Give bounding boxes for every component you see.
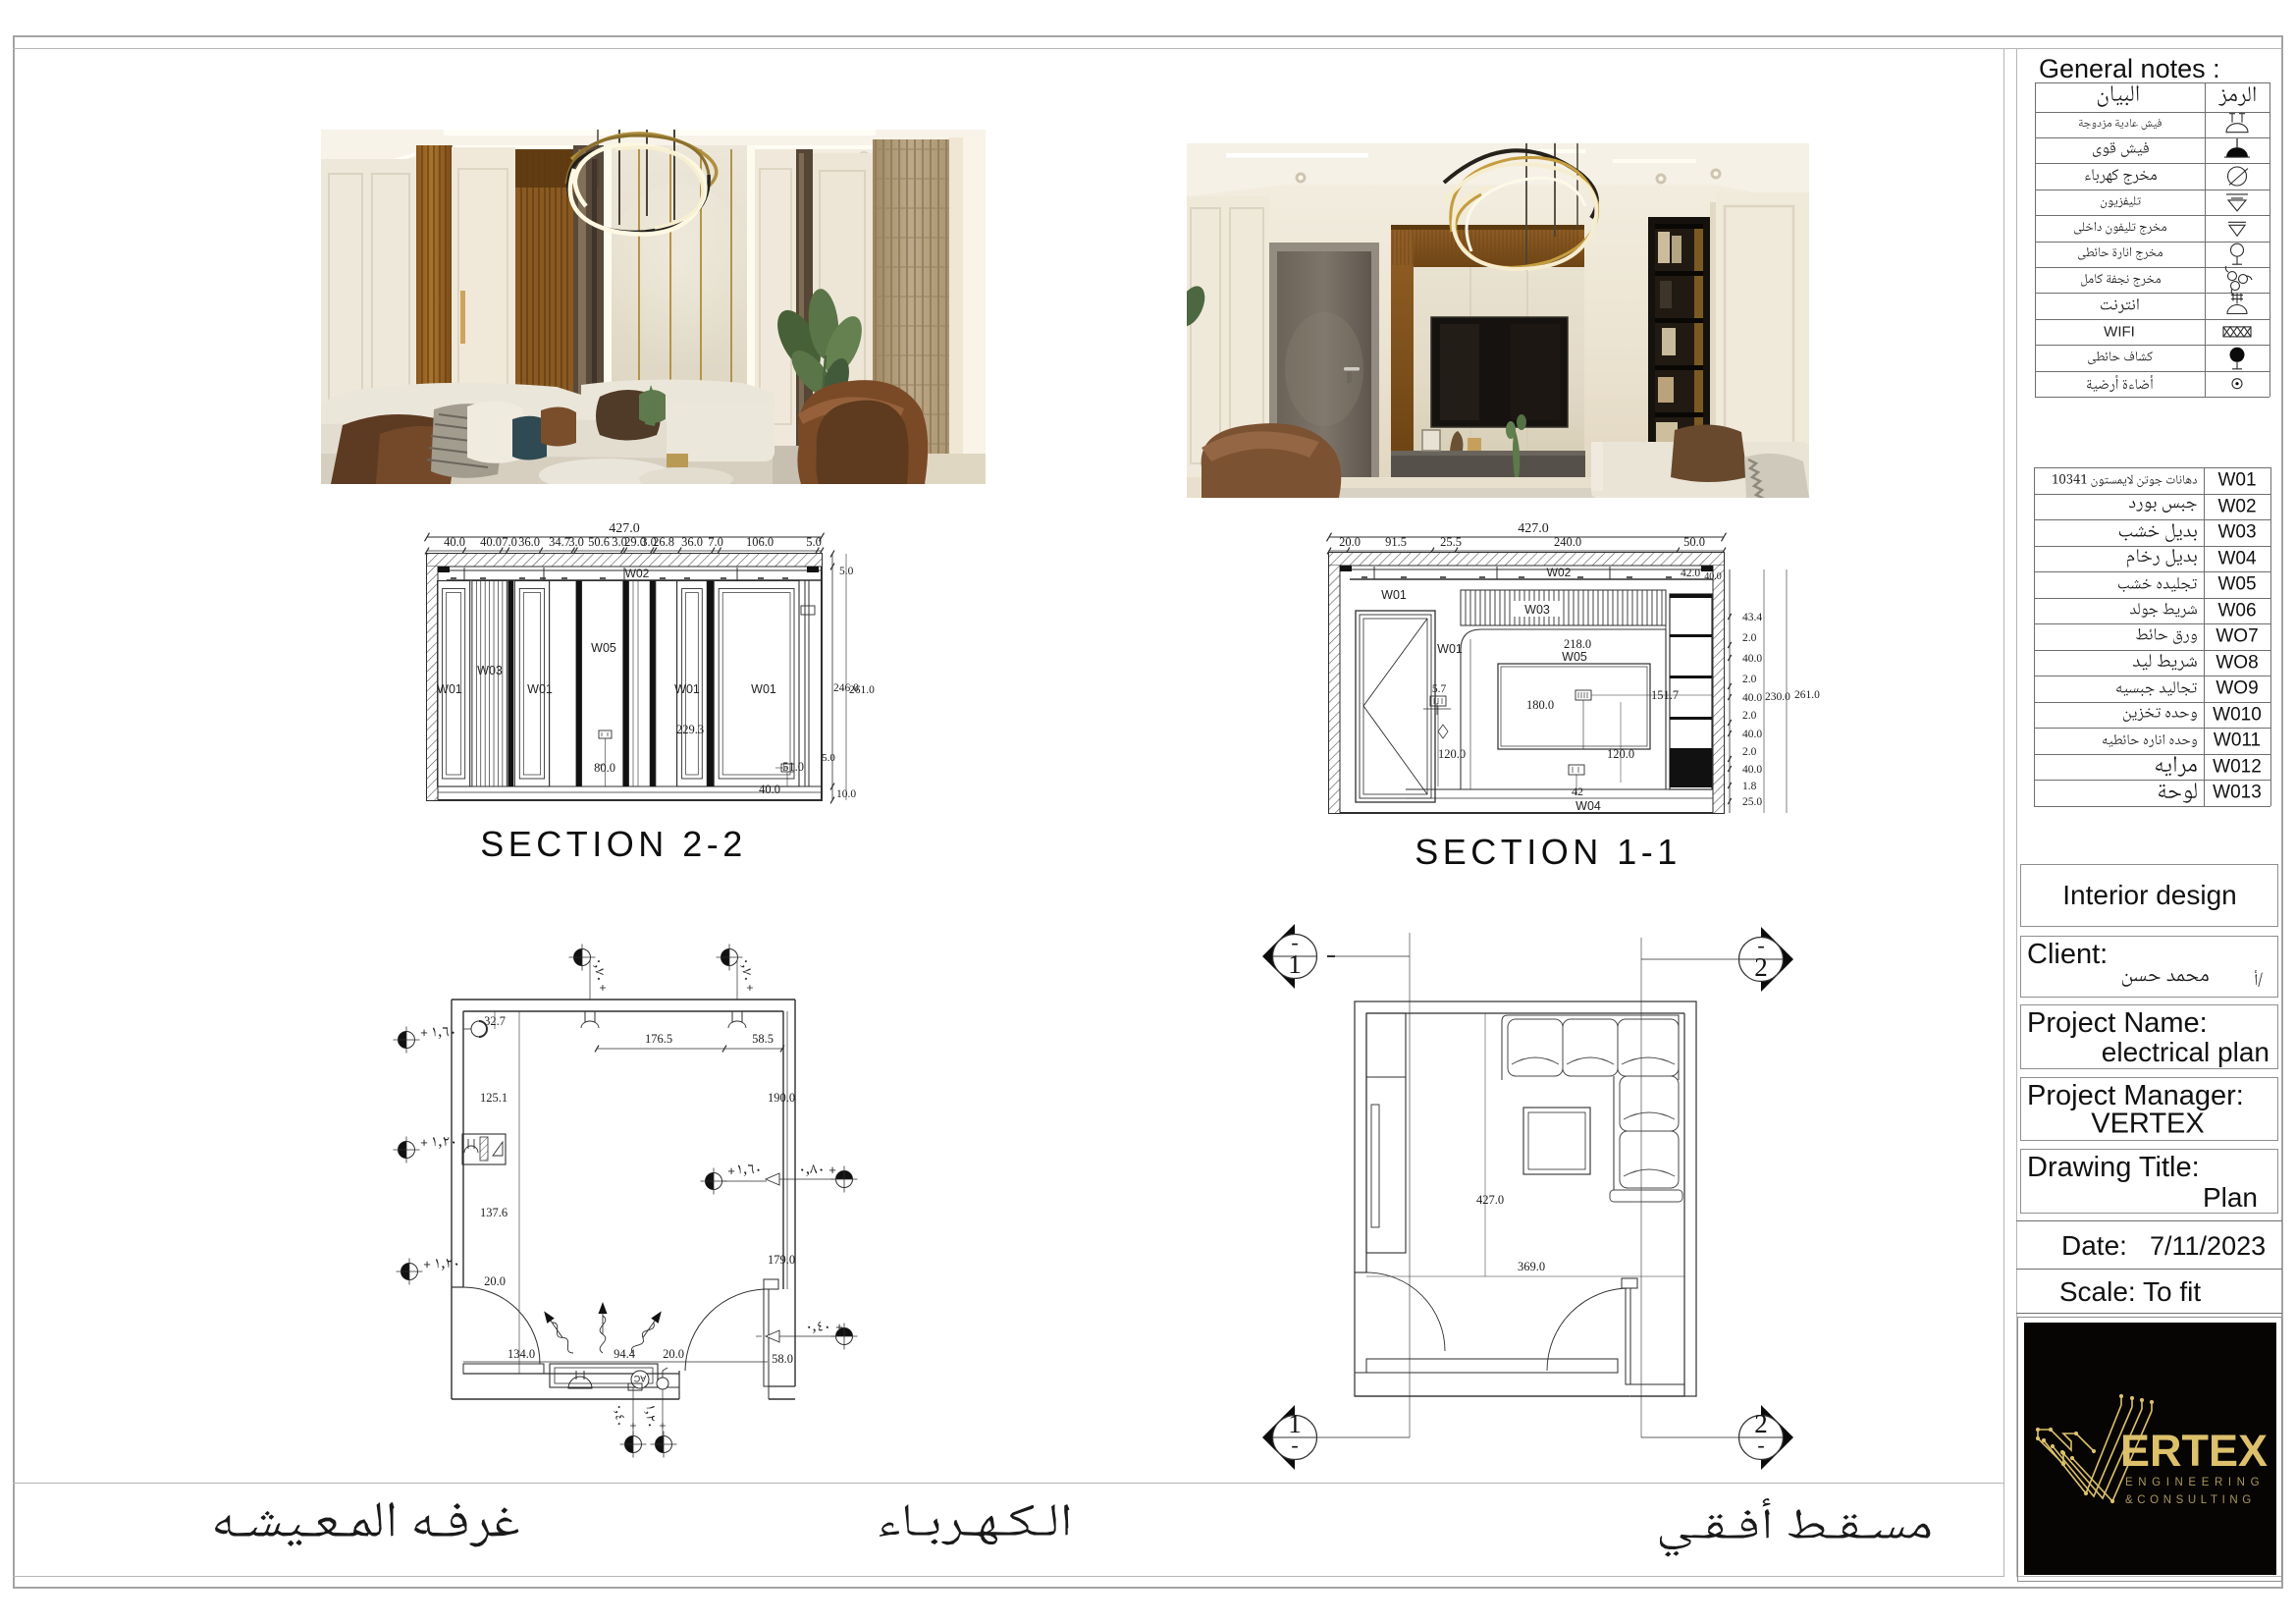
svg-text:134.0: 134.0 xyxy=(507,1347,535,1361)
svg-text:+: + xyxy=(835,1320,843,1334)
svg-text:W01: W01 xyxy=(751,682,776,696)
svg-text:40.0: 40.0 xyxy=(1742,729,1762,740)
svg-text:40.0: 40.0 xyxy=(1742,653,1762,665)
svg-text:40.0: 40.0 xyxy=(1742,764,1762,776)
svg-text:5.7: 5.7 xyxy=(1432,683,1447,695)
svg-text:40.0: 40.0 xyxy=(444,535,465,549)
svg-text:+: + xyxy=(743,984,757,991)
svg-text:W01: W01 xyxy=(527,682,553,696)
svg-text:+: + xyxy=(423,1257,431,1271)
svg-text:W05: W05 xyxy=(591,641,616,655)
svg-text:W01: W01 xyxy=(1437,642,1463,656)
svg-text:40.0: 40.0 xyxy=(759,783,780,796)
svg-text:7.0: 7.0 xyxy=(708,535,723,549)
svg-text:-: - xyxy=(1757,933,1764,957)
svg-text:261.0: 261.0 xyxy=(849,684,875,696)
svg-text:+: + xyxy=(727,1163,735,1178)
svg-text:2.0: 2.0 xyxy=(1742,674,1757,685)
svg-text:137.6: 137.6 xyxy=(480,1206,507,1219)
svg-text:W01: W01 xyxy=(674,682,700,696)
svg-text:36.0: 36.0 xyxy=(518,535,540,549)
svg-text:W02: W02 xyxy=(1547,566,1572,579)
svg-text:40.0: 40.0 xyxy=(480,535,502,549)
svg-text:W04: W04 xyxy=(1575,799,1601,813)
svg-text:W01: W01 xyxy=(437,682,462,696)
svg-text:240.0: 240.0 xyxy=(1554,535,1581,549)
svg-text:427.0: 427.0 xyxy=(1518,521,1549,536)
svg-text:3.0: 3.0 xyxy=(568,535,584,549)
svg-text:AC: AC xyxy=(633,1374,646,1383)
svg-text:190.0: 190.0 xyxy=(768,1091,795,1105)
svg-text:5.0: 5.0 xyxy=(822,752,835,764)
svg-text:58.5: 58.5 xyxy=(752,1032,774,1046)
svg-text:5.0: 5.0 xyxy=(839,566,854,577)
svg-text:427.0: 427.0 xyxy=(1476,1193,1504,1207)
svg-text:43.4: 43.4 xyxy=(1742,612,1762,623)
svg-text:2.0: 2.0 xyxy=(1742,710,1757,722)
svg-text:229.3: 229.3 xyxy=(676,723,704,736)
svg-text:40.0: 40.0 xyxy=(1742,692,1762,704)
svg-text:25.0: 25.0 xyxy=(1742,796,1762,808)
svg-text:5.0: 5.0 xyxy=(806,535,822,549)
svg-text:W02: W02 xyxy=(625,567,650,580)
svg-text:20.0: 20.0 xyxy=(484,1274,506,1288)
svg-text:SECTION 1-1: SECTION 1-1 xyxy=(1415,832,1682,872)
svg-text:W01: W01 xyxy=(1381,588,1407,602)
svg-text:218.0: 218.0 xyxy=(1564,637,1591,651)
svg-text:427.0: 427.0 xyxy=(609,521,640,536)
svg-text:369.0: 369.0 xyxy=(1518,1260,1545,1273)
svg-text:94.4: 94.4 xyxy=(614,1347,636,1361)
svg-text:40.0: 40.0 xyxy=(1704,571,1722,582)
svg-text:20.0: 20.0 xyxy=(1339,535,1361,549)
svg-text:2.0: 2.0 xyxy=(1742,632,1757,644)
svg-text:125.1: 125.1 xyxy=(480,1091,507,1105)
svg-text:50.0: 50.0 xyxy=(1683,535,1705,549)
svg-text:W03: W03 xyxy=(1524,603,1550,617)
svg-text:106.0: 106.0 xyxy=(746,535,774,549)
svg-text:-: - xyxy=(1291,1433,1298,1457)
svg-text:26.8: 26.8 xyxy=(653,535,674,549)
svg-text:-: - xyxy=(1291,930,1298,954)
svg-text:7.0: 7.0 xyxy=(502,535,517,549)
svg-text:+: + xyxy=(828,1163,836,1177)
svg-text:+: + xyxy=(420,1025,428,1040)
svg-text:+: + xyxy=(420,1135,428,1150)
svg-text:20.0: 20.0 xyxy=(663,1347,684,1361)
svg-text:36.0: 36.0 xyxy=(681,535,703,549)
svg-text:25.5: 25.5 xyxy=(1440,535,1462,549)
svg-text:2.0: 2.0 xyxy=(1742,746,1757,758)
svg-text:42.0: 42.0 xyxy=(1681,568,1700,579)
svg-text:1.8: 1.8 xyxy=(1742,781,1757,792)
svg-text:179.0: 179.0 xyxy=(768,1253,795,1267)
svg-text:42: 42 xyxy=(1572,784,1583,798)
svg-text:261.0: 261.0 xyxy=(1794,689,1820,701)
svg-text:34.7: 34.7 xyxy=(549,535,570,549)
svg-text:+: + xyxy=(596,984,610,991)
svg-text:W03: W03 xyxy=(477,664,503,677)
svg-text:176.5: 176.5 xyxy=(645,1032,672,1046)
svg-text:58.0: 58.0 xyxy=(772,1352,793,1366)
svg-text:+: + xyxy=(626,1422,640,1429)
svg-text:-: - xyxy=(1757,1433,1764,1457)
svg-text:120.0: 120.0 xyxy=(1438,747,1466,761)
svg-text:50.6: 50.6 xyxy=(588,535,610,549)
svg-text:W05: W05 xyxy=(1562,650,1587,664)
svg-text:SECTION 2-2: SECTION 2-2 xyxy=(480,824,747,864)
svg-text:180.0: 180.0 xyxy=(1526,698,1554,712)
svg-text:80.0: 80.0 xyxy=(594,761,615,775)
svg-text:+: + xyxy=(656,1422,669,1429)
svg-text:91.5: 91.5 xyxy=(1385,535,1407,549)
